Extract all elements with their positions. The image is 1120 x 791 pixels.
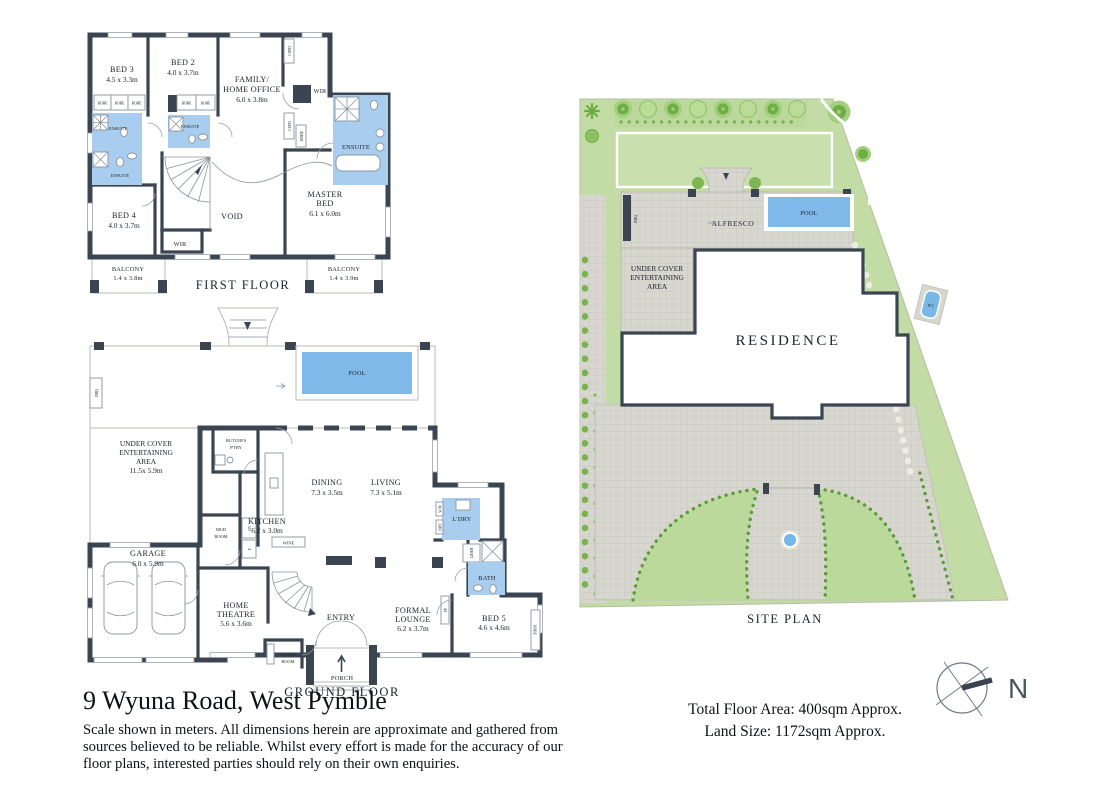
mud-label-1: MUD [216,527,226,532]
theatre-label-1: HOME [223,601,248,610]
theatre-dims: 5.6 x 3.6m [220,619,252,628]
living-label: LIVING [371,478,401,487]
floorplan-sheet: BALCONY 1.4 x 3.8m BALCONY 1.4 x 3.9m RO… [0,0,1120,791]
first-floor-title: FIRST FLOOR [196,278,290,292]
pool-label: POOL [348,370,366,377]
balcony-right-dims: 1.4 x 3.9m [329,275,358,282]
ucea-label-2: ENTERTAINING [119,448,173,457]
land-size: Land Size: 1172sqm Approx. [650,721,940,743]
garage-dims: 6.0 x 5.9m [132,559,164,568]
ldry-label: L'DRY [452,516,471,523]
dining-dims: 7.3 x 3.5m [311,488,343,497]
ensuite-label: ENSUITE [109,126,128,131]
balcony-left-label: BALCONY [112,266,144,273]
area-summary: Total Floor Area: 400sqm Approx. Land Si… [650,699,940,743]
dining-label: DINING [312,478,343,487]
porch: PORCH [306,621,377,690]
north-label: N [1008,673,1028,704]
kitchen-label: KITCHEN [248,517,286,526]
bed4-label: BED 4 [112,211,136,220]
garage-label: GARAGE [130,549,166,558]
theatre-label-2: THEATRE [217,610,255,619]
property-address: 9 Wyuna Road, West Pymble [83,686,387,716]
laundry: W/M DRY L'DRY [436,498,480,540]
kitchen-dims: 6.2 x 3.0m [251,526,283,535]
master-dims: 6.1 x 6.0m [309,209,341,218]
void-curve [212,162,332,183]
site-ucea-label-3: AREA [647,282,668,291]
fp-label: FP [444,608,448,612]
bath-label: BATH [478,575,496,582]
star-plant-icon [585,104,599,118]
ensuite-label: ENSUITE [181,124,200,129]
robe-label: ROBE [300,130,304,140]
master-ensuite: ENSUITE [333,95,388,185]
staircase [162,157,210,230]
ucea-dims: 11.5x 5.9m [129,466,162,475]
bed3-dims: 4.5 x 3.3m [106,75,138,84]
lounge-label-2: LOUNGE [395,615,430,624]
site-ucea-label-2: ENTERTAINING [630,273,684,282]
robe-label: ROBE [115,102,125,106]
family-dims: 6.0 x 3.8m [236,95,268,104]
lounge-label-1: FORMAL [395,606,431,615]
disclaimer: Scale shown in meters. All dimensions he… [83,722,583,772]
small-tree-icon [586,130,599,143]
bed2-label: BED 2 [171,58,195,67]
robe-label: ROBE [132,102,142,106]
robe-label: ROBE [98,102,108,106]
ensuite-label: ENSUITE [111,173,130,178]
cloak-label-2: ROOM [281,659,294,664]
kitchen-fixtures: OV F WINE [242,453,305,558]
bed2-ensuite: ENSUITE [168,115,210,148]
driveway [595,405,955,600]
bed2-dims: 4.0 x 3.7m [167,68,199,77]
bed2-robes: ROBE ROBE [168,95,215,112]
dry-label: DRY [439,523,443,531]
wine-label: WINE [283,541,295,546]
bed3-robes: ROBE ROBE ROBE [94,95,145,110]
site-plan-title: SITE PLAN [747,612,823,626]
robe-label: ROBE [182,102,192,106]
first-floor-plan: BALCONY 1.4 x 3.8m BALCONY 1.4 x 3.9m RO… [80,25,410,310]
lounge-dims: 6.2 x 3.7m [397,624,429,633]
wir-label: WIR [313,88,327,95]
linen-closet: LINEN [463,541,503,562]
bed5-label: BED 5 [482,614,506,623]
site-bbq-label: BBQ [634,215,638,223]
disclaimer-line-3: floor plans, interested parties should r… [83,756,583,773]
f-label: F [248,548,252,550]
bathroom: BATH [468,562,505,595]
total-floor-area: Total Floor Area: 400sqm Approx. [650,699,940,721]
entry-label: ENTRY [327,613,355,622]
balcony-right: BALCONY 1.4 x 3.9m [305,257,383,293]
water-tank: WT [914,284,948,324]
bed5-dims: 4.6 x 4.6m [478,623,510,632]
cloak-room: CLOAK ROOM [267,644,296,664]
ground-floor-plan: BBQ ALFRESCO 4.2 x 5.4m POOL UNDER COVER… [80,300,555,698]
porch-label: PORCH [331,675,353,682]
family-label-2: HOME OFFICE [223,85,281,94]
residence-label: RESIDENCE [736,333,841,349]
bed5-robe: ROBE [531,610,540,650]
ucea-label-1: UNDER COVER [120,439,172,448]
robe-label: ROBE [533,625,537,635]
entertaining-area: UNDER COVER ENTERTAINING AREA 11.5x 5.9m [90,428,200,545]
site-pool-label: POOL [800,210,818,217]
compass-rose-icon [936,662,992,716]
master-label-1: MASTER [307,190,342,199]
cupd-label: CUPD [288,121,292,131]
disclaimer-line-1: Scale shown in meters. All dimensions he… [83,722,583,739]
family-label-1: FAMILY/ [235,75,270,84]
master-label-2: BED [316,199,333,208]
butlers-pantry: BUTLER'S P'TRY [215,438,247,465]
ensuite-label: ENSUITE [342,144,370,151]
linen-label: LINEN [470,547,474,558]
cloak-label-1: CLOAK [280,652,296,657]
cupd-label: CUPD [288,46,292,56]
mud-label-2: ROOM [214,534,227,539]
bbq-label: BBQ [95,389,99,397]
void-label: VOID [221,212,243,221]
bed3-ensuite: ENSUITE [92,113,142,150]
site-ucea-label-1: UNDER COVER [631,264,683,273]
site-alfresco-label: ALFRESCO [712,219,755,228]
bed3-label: BED 3 [110,65,134,74]
balcony-left: BALCONY 1.4 x 3.8m [90,257,167,293]
side-pad [868,192,887,205]
wm-label: W/M [439,504,443,512]
wir-room-label: WIR [173,241,187,248]
balcony-right-label: BALCONY [328,266,360,273]
butlers-label-2: P'TRY [230,445,243,450]
butlers-label-1: BUTLER'S [226,438,247,443]
entry-staircase [272,572,316,616]
site-plan: BBQ ALFRESCO POOL UNDER COVER ENTERTAINI… [575,95,1020,635]
disclaimer-line-2: sources believed to be reliable. Whilst … [83,739,583,756]
balcony-left-dims: 1.4 x 3.8m [113,275,142,282]
bed4-dims: 4.0 x 3.7m [108,221,140,230]
robe-label: ROBE [201,102,211,106]
garage-cars [101,562,188,634]
bed4-ensuite: ENSUITE [92,150,142,185]
pool: POOL [296,346,418,400]
compass: N [930,650,1060,740]
living-dims: 7.3 x 5.1m [370,488,402,497]
ucea-label-3: AREA [136,457,157,466]
